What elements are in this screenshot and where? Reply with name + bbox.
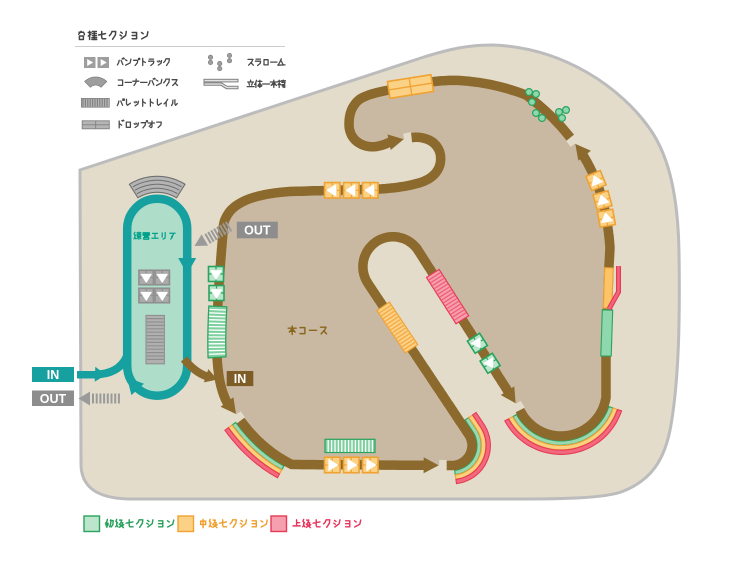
svg-text:OUT: OUT bbox=[40, 392, 67, 406]
svg-text:IN: IN bbox=[47, 368, 60, 382]
svg-text:OUT: OUT bbox=[244, 224, 271, 238]
svg-text:IN: IN bbox=[234, 372, 247, 386]
